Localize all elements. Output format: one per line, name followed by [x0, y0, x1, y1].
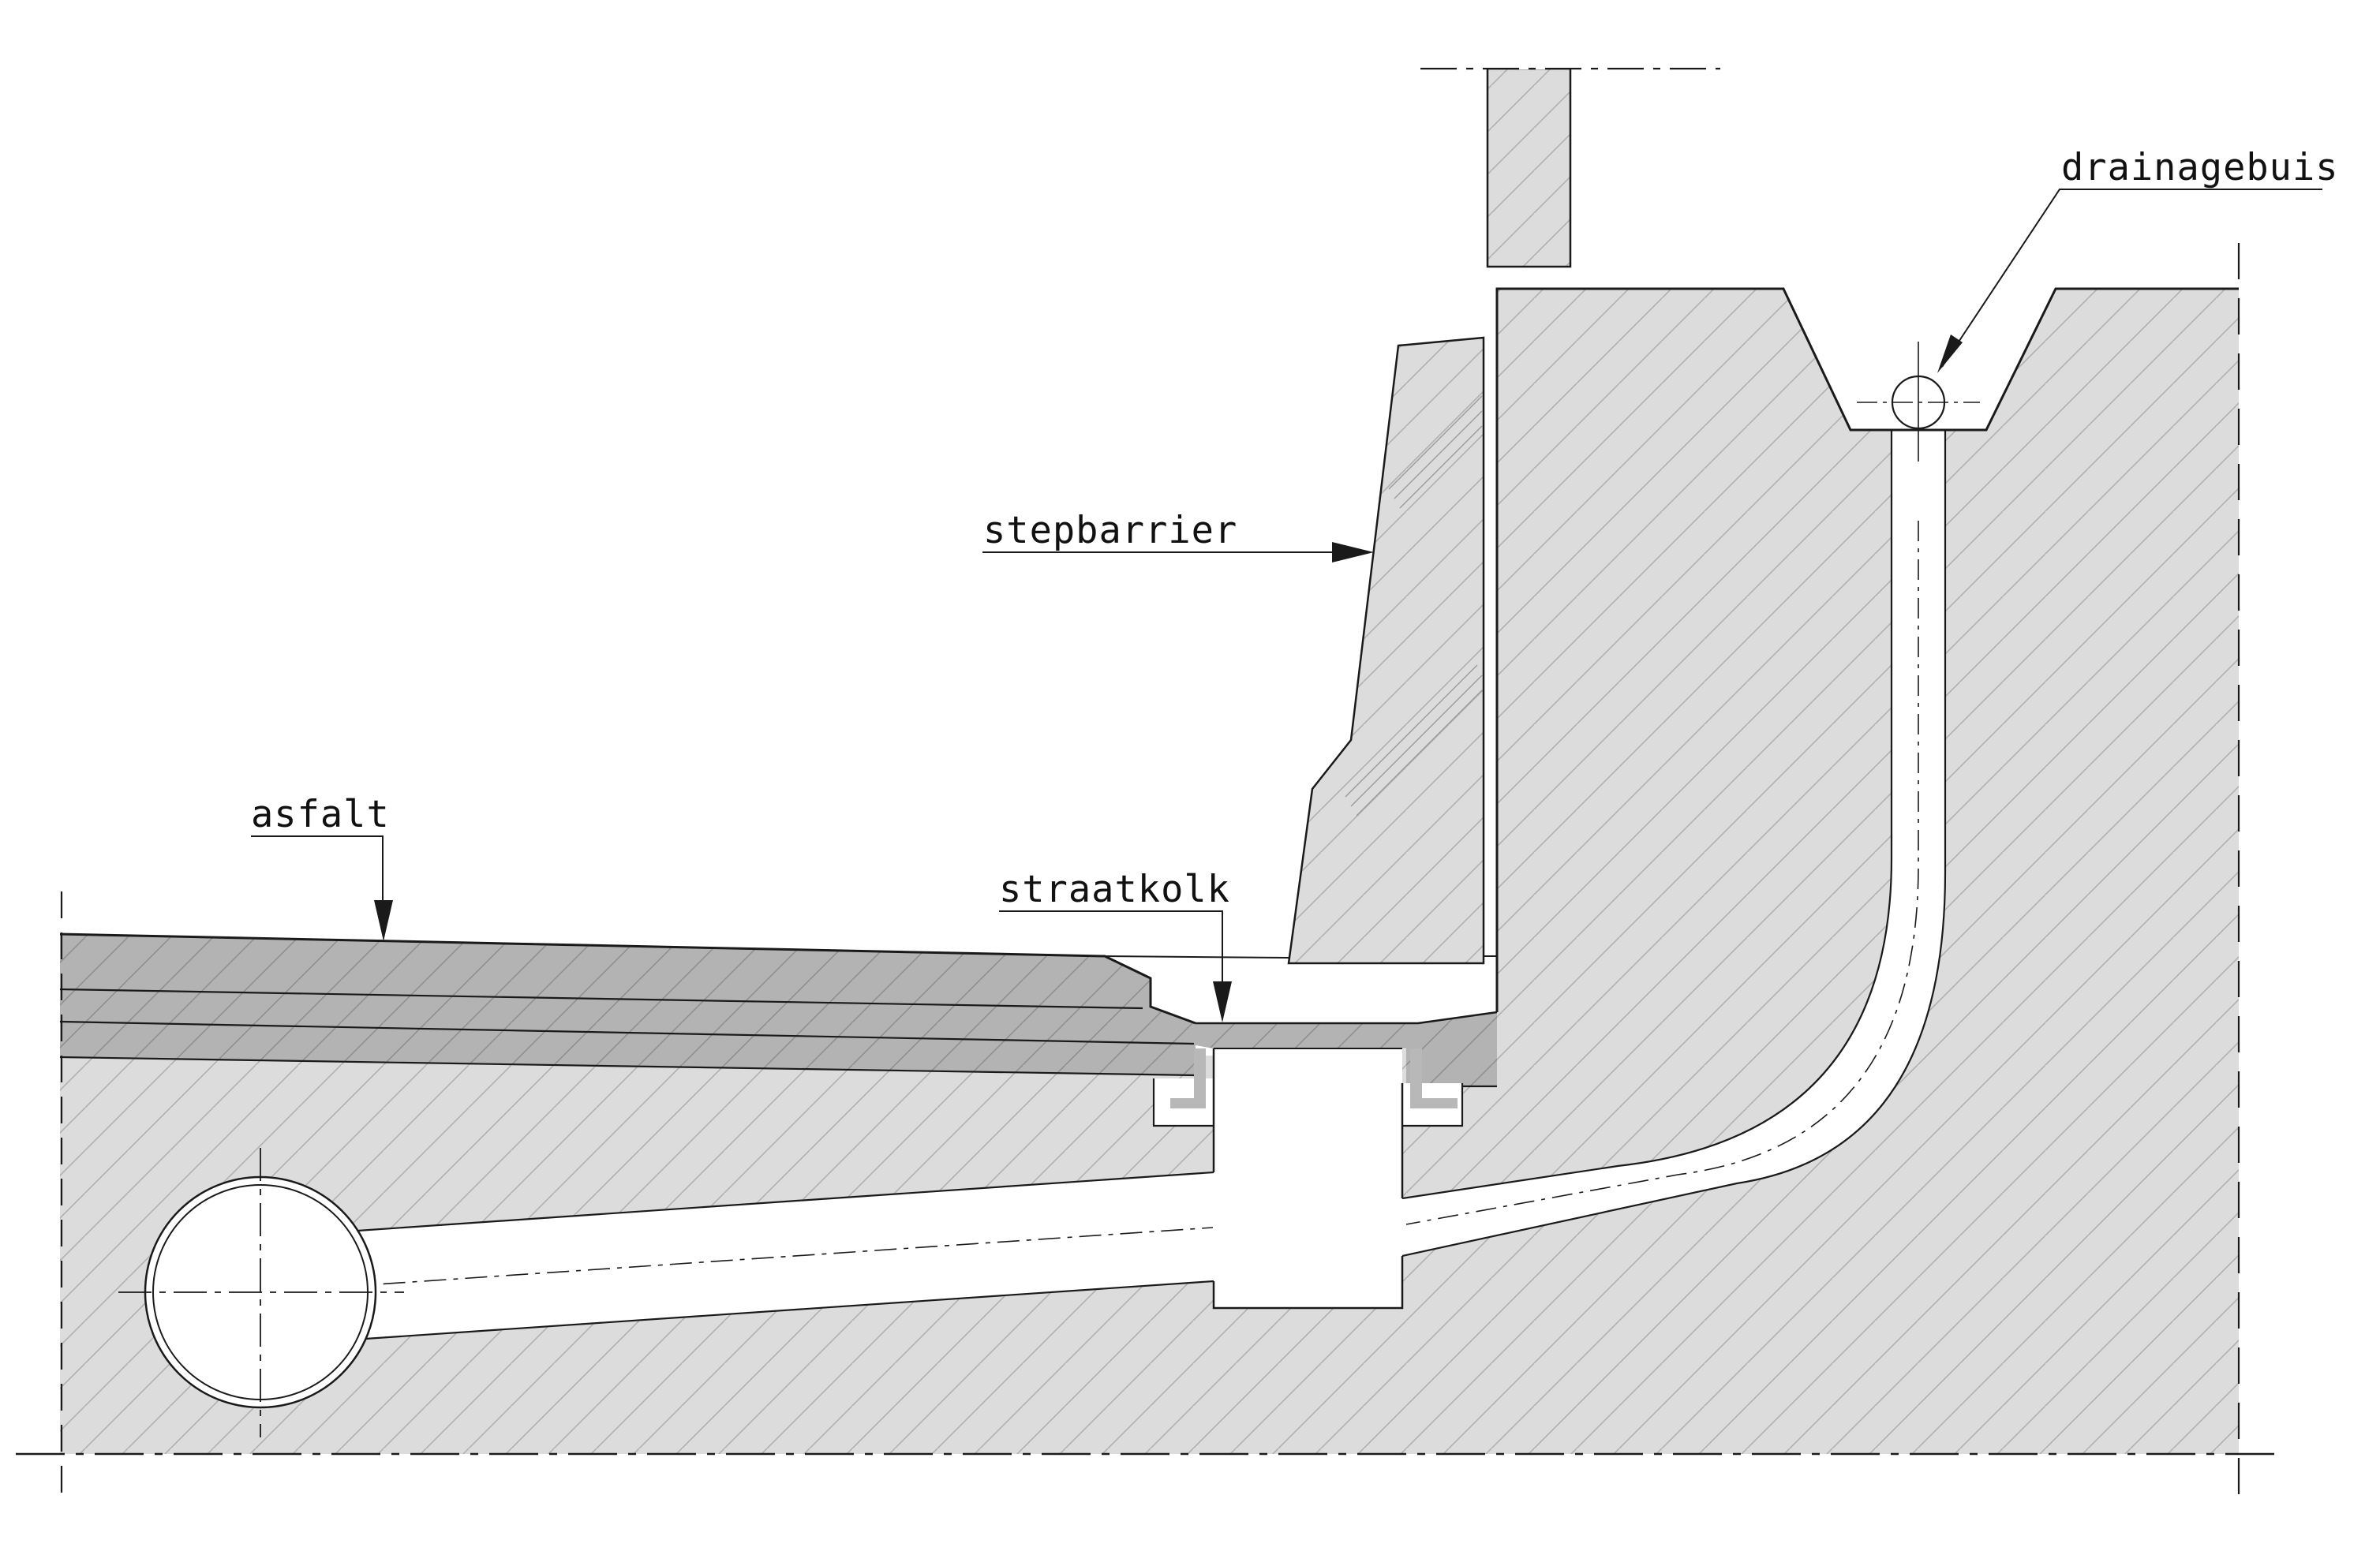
straatkolk-text: straatkolk [999, 868, 1230, 911]
cross-section-drawing: drainagebuis stepbarrier asfalt straatko… [0, 0, 2380, 1551]
asphalt-structure [60, 934, 1196, 1075]
gutter-edge-line-left [1105, 956, 1289, 958]
asfalt-leader [251, 836, 383, 907]
drainagebuis-arrowhead [1937, 334, 1963, 373]
label-stepbarrier: stepbarrier [982, 509, 1374, 562]
asfalt-arrowhead [374, 900, 393, 941]
drawing-canvas: drainagebuis stepbarrier asfalt straatko… [0, 0, 2380, 1551]
post-section [1487, 69, 1570, 267]
stepbarrier-body [1289, 338, 1484, 963]
gully-pit-cavity [1214, 1048, 1402, 1308]
stepbarrier-element [1289, 338, 1484, 963]
drainagebuis-text: drainagebuis [2061, 146, 2339, 189]
straatkolk-arrowhead [1213, 981, 1232, 1022]
stepbarrier-text: stepbarrier [983, 509, 1237, 552]
stepbarrier-arrowhead [1332, 542, 1374, 562]
gully-pit [1205, 1048, 1402, 1308]
label-asfalt: asfalt [251, 793, 393, 941]
asfalt-text: asfalt [251, 793, 390, 836]
